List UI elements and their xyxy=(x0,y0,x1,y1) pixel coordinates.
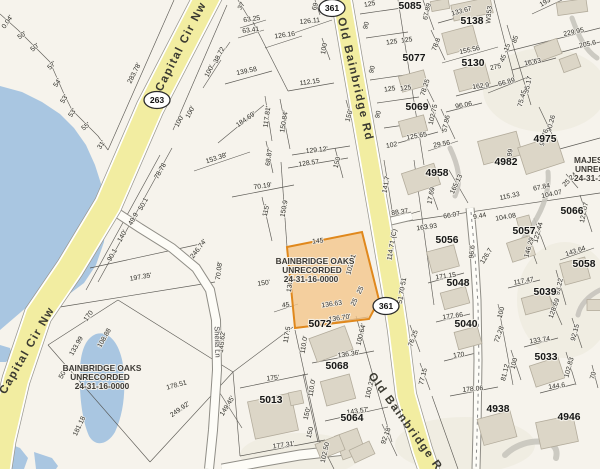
parcel-number-label: 5040 xyxy=(455,319,478,330)
sheila-ln-label: Sheila Ln xyxy=(212,326,222,358)
parcel-number-label: 5056 xyxy=(436,235,459,246)
parcel-number-label: 5130 xyxy=(462,58,485,69)
measurement-label: 175' xyxy=(266,374,279,382)
majestic-id: 24-31-16-0000 xyxy=(574,173,600,183)
parcel-number-label: 5069 xyxy=(406,102,429,113)
parcel-number-label: 5077 xyxy=(403,53,426,64)
svg-text:361: 361 xyxy=(325,3,340,13)
parcel-number-label: 4946 xyxy=(558,412,581,423)
parcel-number-label: 5138 xyxy=(461,16,484,27)
measurement-label: 145 xyxy=(312,237,324,245)
bainbridge-oaks-id-2: 24-31-16-0000 xyxy=(75,381,130,391)
svg-text:361: 361 xyxy=(379,301,394,311)
parcel-number-label: 5072 xyxy=(309,319,332,330)
route-shield-263: 263 xyxy=(144,92,170,109)
svg-text:263: 263 xyxy=(150,95,165,105)
parcel-number-label: 5058 xyxy=(573,259,596,270)
measurement-label: 99 xyxy=(506,148,514,157)
bainbridge-oaks-id-1: 24-31-16-0000 xyxy=(284,274,339,284)
parcel-number-label: 5048 xyxy=(447,278,470,289)
parcel-number-label: 5085 xyxy=(399,1,422,12)
parcel-number-label: 5068 xyxy=(326,361,349,372)
map-canvas[interactable]: 0.04'50'50'57'54'53'53'55'31'283.78'100'… xyxy=(0,0,600,469)
building xyxy=(587,300,600,311)
parcel-number-label: 5013 xyxy=(260,395,283,406)
parcel-number-label: 5033 xyxy=(535,352,558,363)
parcel-number-label: 5057 xyxy=(513,226,536,237)
parcel-number-label: 4938 xyxy=(487,404,510,415)
parcel-number-label: 4975 xyxy=(534,134,557,145)
parcel-number-label: 5066 xyxy=(561,206,584,217)
parcel-number-label: 5064 xyxy=(341,413,364,424)
route-shield-361-mid: 361 xyxy=(373,298,399,315)
parcel-number-label: 4958 xyxy=(426,168,449,179)
parcel-map-svg: 0.04'50'50'57'54'53'53'55'31'283.78'100'… xyxy=(0,0,600,469)
building xyxy=(288,390,303,405)
measurement-label: 96.6 xyxy=(468,245,476,259)
parcel-number-label: 5039 xyxy=(534,287,557,298)
parcel-number-label: 4982 xyxy=(495,157,518,168)
route-shield-361-top: 361 xyxy=(319,0,345,17)
measurement-label: 45 xyxy=(282,301,291,309)
